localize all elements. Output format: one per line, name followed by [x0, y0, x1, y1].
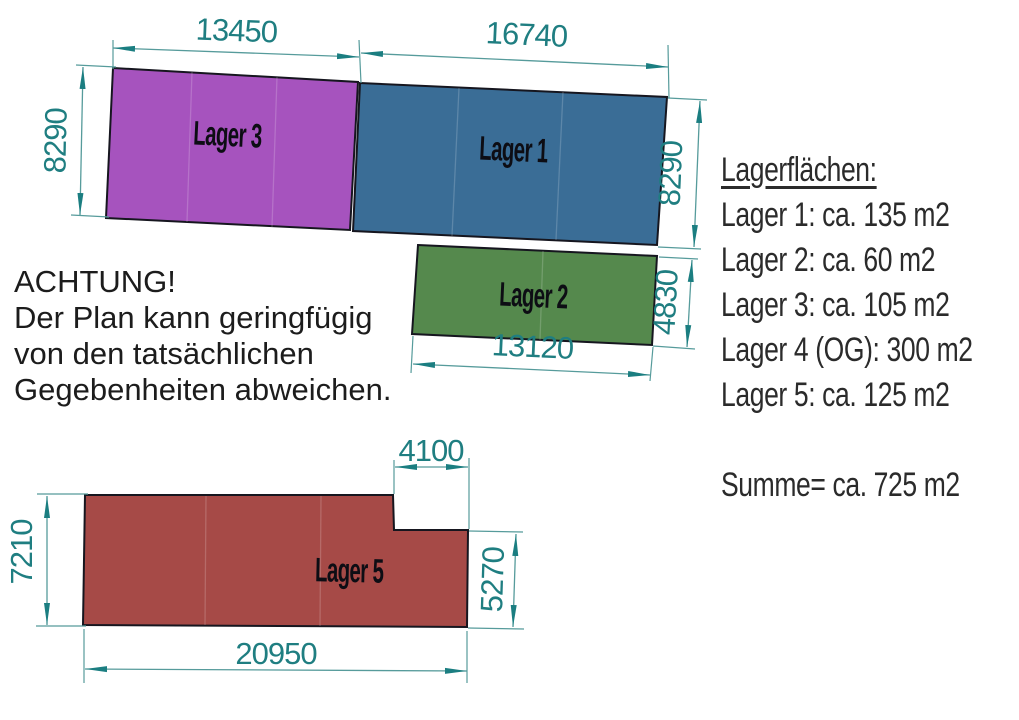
lager-3-label: Lager 3: [193, 114, 263, 155]
lager-5-label: Lager 5: [315, 551, 384, 590]
legend-title: Lagerflächen:: [721, 148, 973, 193]
dim-label-lager5-left: 7210: [4, 519, 39, 585]
legend-item-lager2: Lager 2: ca. 60 m2: [721, 238, 973, 283]
legend-spacer: [721, 418, 973, 463]
legend-summary: Summe= ca. 725 m2: [721, 463, 973, 508]
legend-item-lager5: Lager 5: ca. 125 m2: [721, 373, 973, 418]
dim-label-lager5-width: 20950: [235, 636, 317, 671]
dim-label-lager2-height: 4830: [646, 268, 684, 335]
notice-line: von den tatsächlichen: [14, 336, 391, 372]
dim-line-lager1-width: [361, 53, 668, 67]
legend-block: Lagerflächen: Lager 1: ca. 135 m2 Lager …: [721, 148, 973, 508]
dim-label-lager3-height: 8290: [37, 107, 73, 173]
floor-plan-canvas: 13450 16740 8290 8290 4830 13120 7210 41…: [0, 0, 1019, 720]
lager-1-label: Lager 1: [479, 129, 549, 170]
dim-label-lager5-notch: 4100: [399, 433, 465, 468]
dim-label-lager5-right: 5270: [474, 546, 511, 613]
dim-label-lager3-width: 13450: [195, 11, 278, 49]
dim-label-lager1-height: 8290: [652, 140, 690, 207]
dim-line-lager2-height: [687, 260, 692, 347]
legend-item-lager1: Lager 1: ca. 135 m2: [721, 193, 973, 238]
dim-label-lager2-width: 13120: [491, 327, 575, 366]
notice-block: ACHTUNG! Der Plan kann geringfügig von d…: [14, 264, 391, 408]
notice-line: ACHTUNG!: [14, 264, 391, 300]
dim-line-lager5-right: [513, 534, 516, 627]
lager-5-area: [83, 495, 468, 627]
dim-line-lager3-width: [113, 48, 359, 57]
notice-line: Der Plan kann geringfügig: [14, 300, 391, 336]
lager-2-label: Lager 2: [499, 275, 569, 316]
legend-item-lager4: Lager 4 (OG): 300 m2: [721, 328, 973, 373]
notice-line: Gegebenheiten abweichen.: [14, 372, 391, 408]
dim-line-lager2-width: [413, 364, 650, 375]
dim-line-lager1-height: [694, 101, 700, 247]
dim-line-lager3-height: [80, 67, 83, 215]
dim-label-lager1-width: 16740: [485, 15, 568, 54]
legend-item-lager3: Lager 3: ca. 105 m2: [721, 283, 973, 328]
